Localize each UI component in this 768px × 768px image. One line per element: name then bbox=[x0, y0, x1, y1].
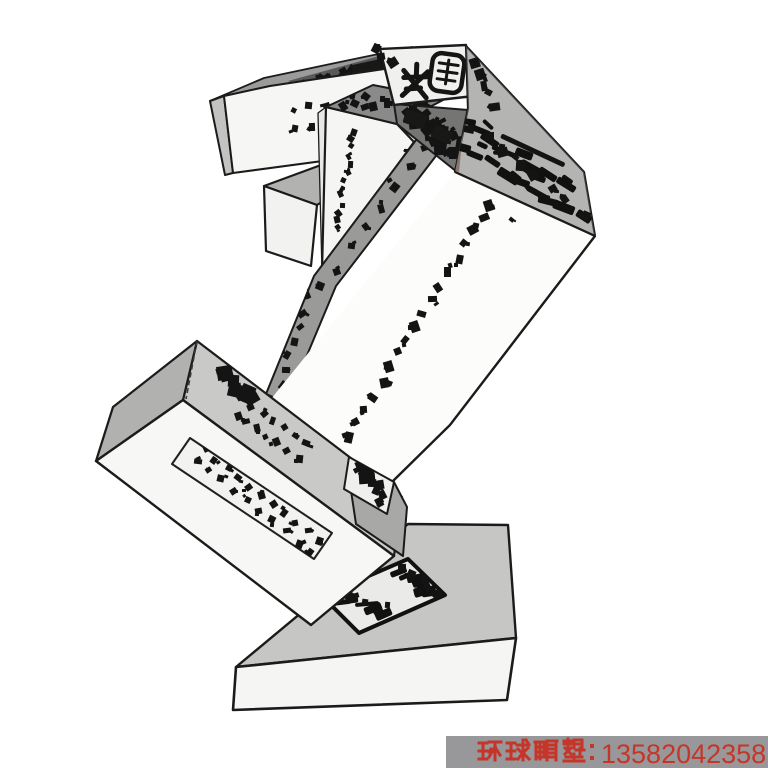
svg-text:13582042358: 13582042358 bbox=[601, 739, 766, 768]
